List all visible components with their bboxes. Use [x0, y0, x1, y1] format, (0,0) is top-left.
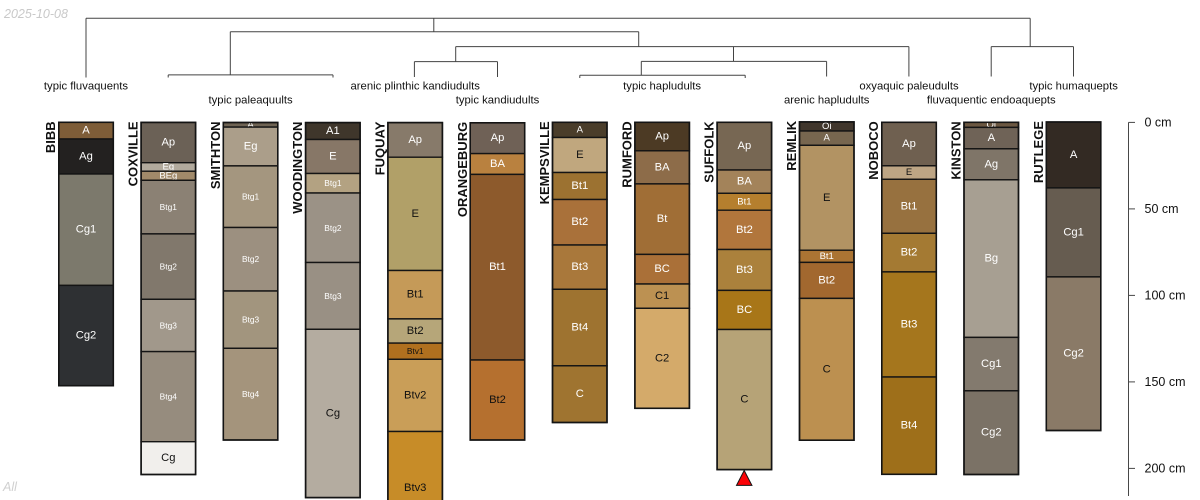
svg-text:Btg3: Btg3 — [242, 315, 260, 325]
svg-text:Bt4: Bt4 — [901, 420, 918, 432]
svg-text:Btg3: Btg3 — [324, 291, 342, 301]
svg-text:200 cm: 200 cm — [1145, 461, 1186, 475]
svg-text:BIBB: BIBB — [43, 121, 58, 153]
svg-text:C: C — [740, 394, 748, 406]
svg-text:Ap: Ap — [161, 137, 175, 149]
svg-text:KINSTON: KINSTON — [949, 121, 964, 179]
svg-text:All: All — [2, 480, 18, 494]
svg-text:BA: BA — [490, 158, 505, 170]
svg-text:typic paleaquults: typic paleaquults — [209, 95, 294, 107]
svg-text:fluvaquentic endoaquepts: fluvaquentic endoaquepts — [927, 95, 1056, 107]
svg-text:arenic plinthic kandiudults: arenic plinthic kandiudults — [351, 81, 481, 93]
svg-text:Bt2: Bt2 — [571, 216, 588, 228]
svg-text:Bt2: Bt2 — [736, 224, 753, 236]
svg-text:E: E — [906, 167, 912, 178]
svg-text:Bt2: Bt2 — [901, 247, 918, 259]
svg-text:100 cm: 100 cm — [1145, 288, 1186, 302]
svg-text:2025-10-08: 2025-10-08 — [3, 7, 68, 21]
svg-text:Bt1: Bt1 — [820, 251, 834, 262]
svg-text:C: C — [576, 388, 584, 400]
svg-text:oxyaquic paleudults: oxyaquic paleudults — [859, 81, 959, 93]
svg-text:RUTLEGE: RUTLEGE — [1031, 121, 1046, 183]
svg-text:Cg2: Cg2 — [76, 330, 97, 342]
svg-text:Bt1: Bt1 — [737, 196, 751, 207]
svg-text:FUQUAY: FUQUAY — [372, 121, 387, 175]
svg-text:NOBOCO: NOBOCO — [866, 121, 881, 180]
svg-text:Bt3: Bt3 — [901, 318, 918, 330]
svg-text:E: E — [823, 192, 830, 204]
svg-text:Bt1: Bt1 — [901, 200, 918, 212]
svg-text:Cg1: Cg1 — [981, 358, 1002, 370]
svg-text:E: E — [576, 149, 583, 161]
svg-text:Bt1: Bt1 — [489, 261, 506, 273]
svg-text:Cg2: Cg2 — [1063, 348, 1084, 360]
svg-text:E: E — [411, 208, 418, 220]
svg-text:Btg2: Btg2 — [160, 262, 178, 272]
svg-text:Eg: Eg — [244, 141, 258, 153]
svg-text:C1: C1 — [655, 290, 669, 302]
svg-text:Cg: Cg — [161, 452, 175, 464]
svg-text:Bt2: Bt2 — [818, 274, 835, 286]
svg-text:Btg2: Btg2 — [324, 223, 342, 233]
svg-text:150 cm: 150 cm — [1145, 375, 1186, 389]
svg-text:REMLIK: REMLIK — [784, 120, 799, 170]
svg-text:Ap: Ap — [408, 134, 422, 146]
svg-text:A: A — [577, 124, 584, 135]
svg-text:arenic hapludults: arenic hapludults — [784, 95, 870, 107]
svg-text:A: A — [82, 125, 90, 137]
svg-text:RUMFORD: RUMFORD — [619, 121, 634, 187]
svg-text:Btg1: Btg1 — [242, 192, 260, 202]
svg-text:SUFFOLK: SUFFOLK — [702, 121, 717, 183]
svg-text:Cg2: Cg2 — [981, 427, 1002, 439]
svg-text:typic kandiudults: typic kandiudults — [456, 95, 540, 107]
svg-text:0 cm: 0 cm — [1145, 115, 1172, 129]
svg-text:Bt3: Bt3 — [736, 264, 753, 276]
svg-text:Btg1: Btg1 — [324, 178, 342, 188]
svg-text:typic hapludults: typic hapludults — [623, 81, 701, 93]
svg-text:typic humaquepts: typic humaquepts — [1029, 81, 1118, 93]
svg-text:A: A — [988, 132, 996, 144]
svg-text:COXVILLE: COXVILLE — [126, 121, 141, 186]
svg-text:Btg2: Btg2 — [242, 254, 260, 264]
svg-text:KEMPSVILLE: KEMPSVILLE — [537, 121, 552, 204]
svg-text:BA: BA — [737, 176, 752, 188]
svg-text:Bt1: Bt1 — [571, 180, 588, 192]
svg-text:Bt2: Bt2 — [407, 325, 424, 337]
svg-text:ORANGEBURG: ORANGEBURG — [455, 122, 470, 217]
svg-text:BC: BC — [737, 304, 753, 316]
svg-text:Btv2: Btv2 — [404, 389, 426, 401]
svg-text:SMITHTON: SMITHTON — [208, 122, 223, 190]
svg-text:typic fluvaquents: typic fluvaquents — [44, 81, 128, 93]
svg-text:Btg4: Btg4 — [242, 389, 260, 399]
svg-text:Bg: Bg — [984, 253, 998, 265]
svg-text:Bt3: Bt3 — [571, 261, 588, 273]
svg-text:Ap: Ap — [738, 140, 752, 152]
svg-text:BA: BA — [655, 161, 670, 173]
svg-text:Btg4: Btg4 — [160, 392, 178, 402]
svg-text:Cg: Cg — [326, 408, 340, 420]
svg-text:Ap: Ap — [655, 131, 669, 143]
svg-text:A: A — [1070, 149, 1078, 161]
svg-text:Btg3: Btg3 — [160, 321, 178, 331]
svg-text:C: C — [823, 363, 831, 375]
svg-text:Cg1: Cg1 — [1063, 226, 1084, 238]
svg-text:Cg1: Cg1 — [76, 224, 97, 236]
svg-text:Btv3: Btv3 — [404, 482, 426, 494]
svg-text:Bt2: Bt2 — [489, 394, 506, 406]
svg-text:Ap: Ap — [491, 132, 505, 144]
svg-text:C2: C2 — [655, 352, 669, 364]
svg-text:A1: A1 — [326, 125, 340, 137]
svg-text:Bt4: Bt4 — [571, 322, 588, 334]
svg-text:Btv1: Btv1 — [407, 346, 424, 356]
svg-text:Ag: Ag — [79, 151, 93, 163]
svg-text:50 cm: 50 cm — [1145, 202, 1179, 216]
svg-text:WOODINGTON: WOODINGTON — [290, 122, 305, 214]
svg-text:Bt1: Bt1 — [407, 289, 424, 301]
svg-text:E: E — [329, 151, 336, 163]
svg-text:BC: BC — [654, 263, 670, 275]
svg-text:Bt: Bt — [657, 213, 668, 225]
svg-text:Ap: Ap — [902, 138, 916, 150]
svg-text:A: A — [824, 133, 831, 144]
svg-text:Btg1: Btg1 — [160, 202, 178, 212]
svg-text:Ag: Ag — [984, 158, 998, 170]
